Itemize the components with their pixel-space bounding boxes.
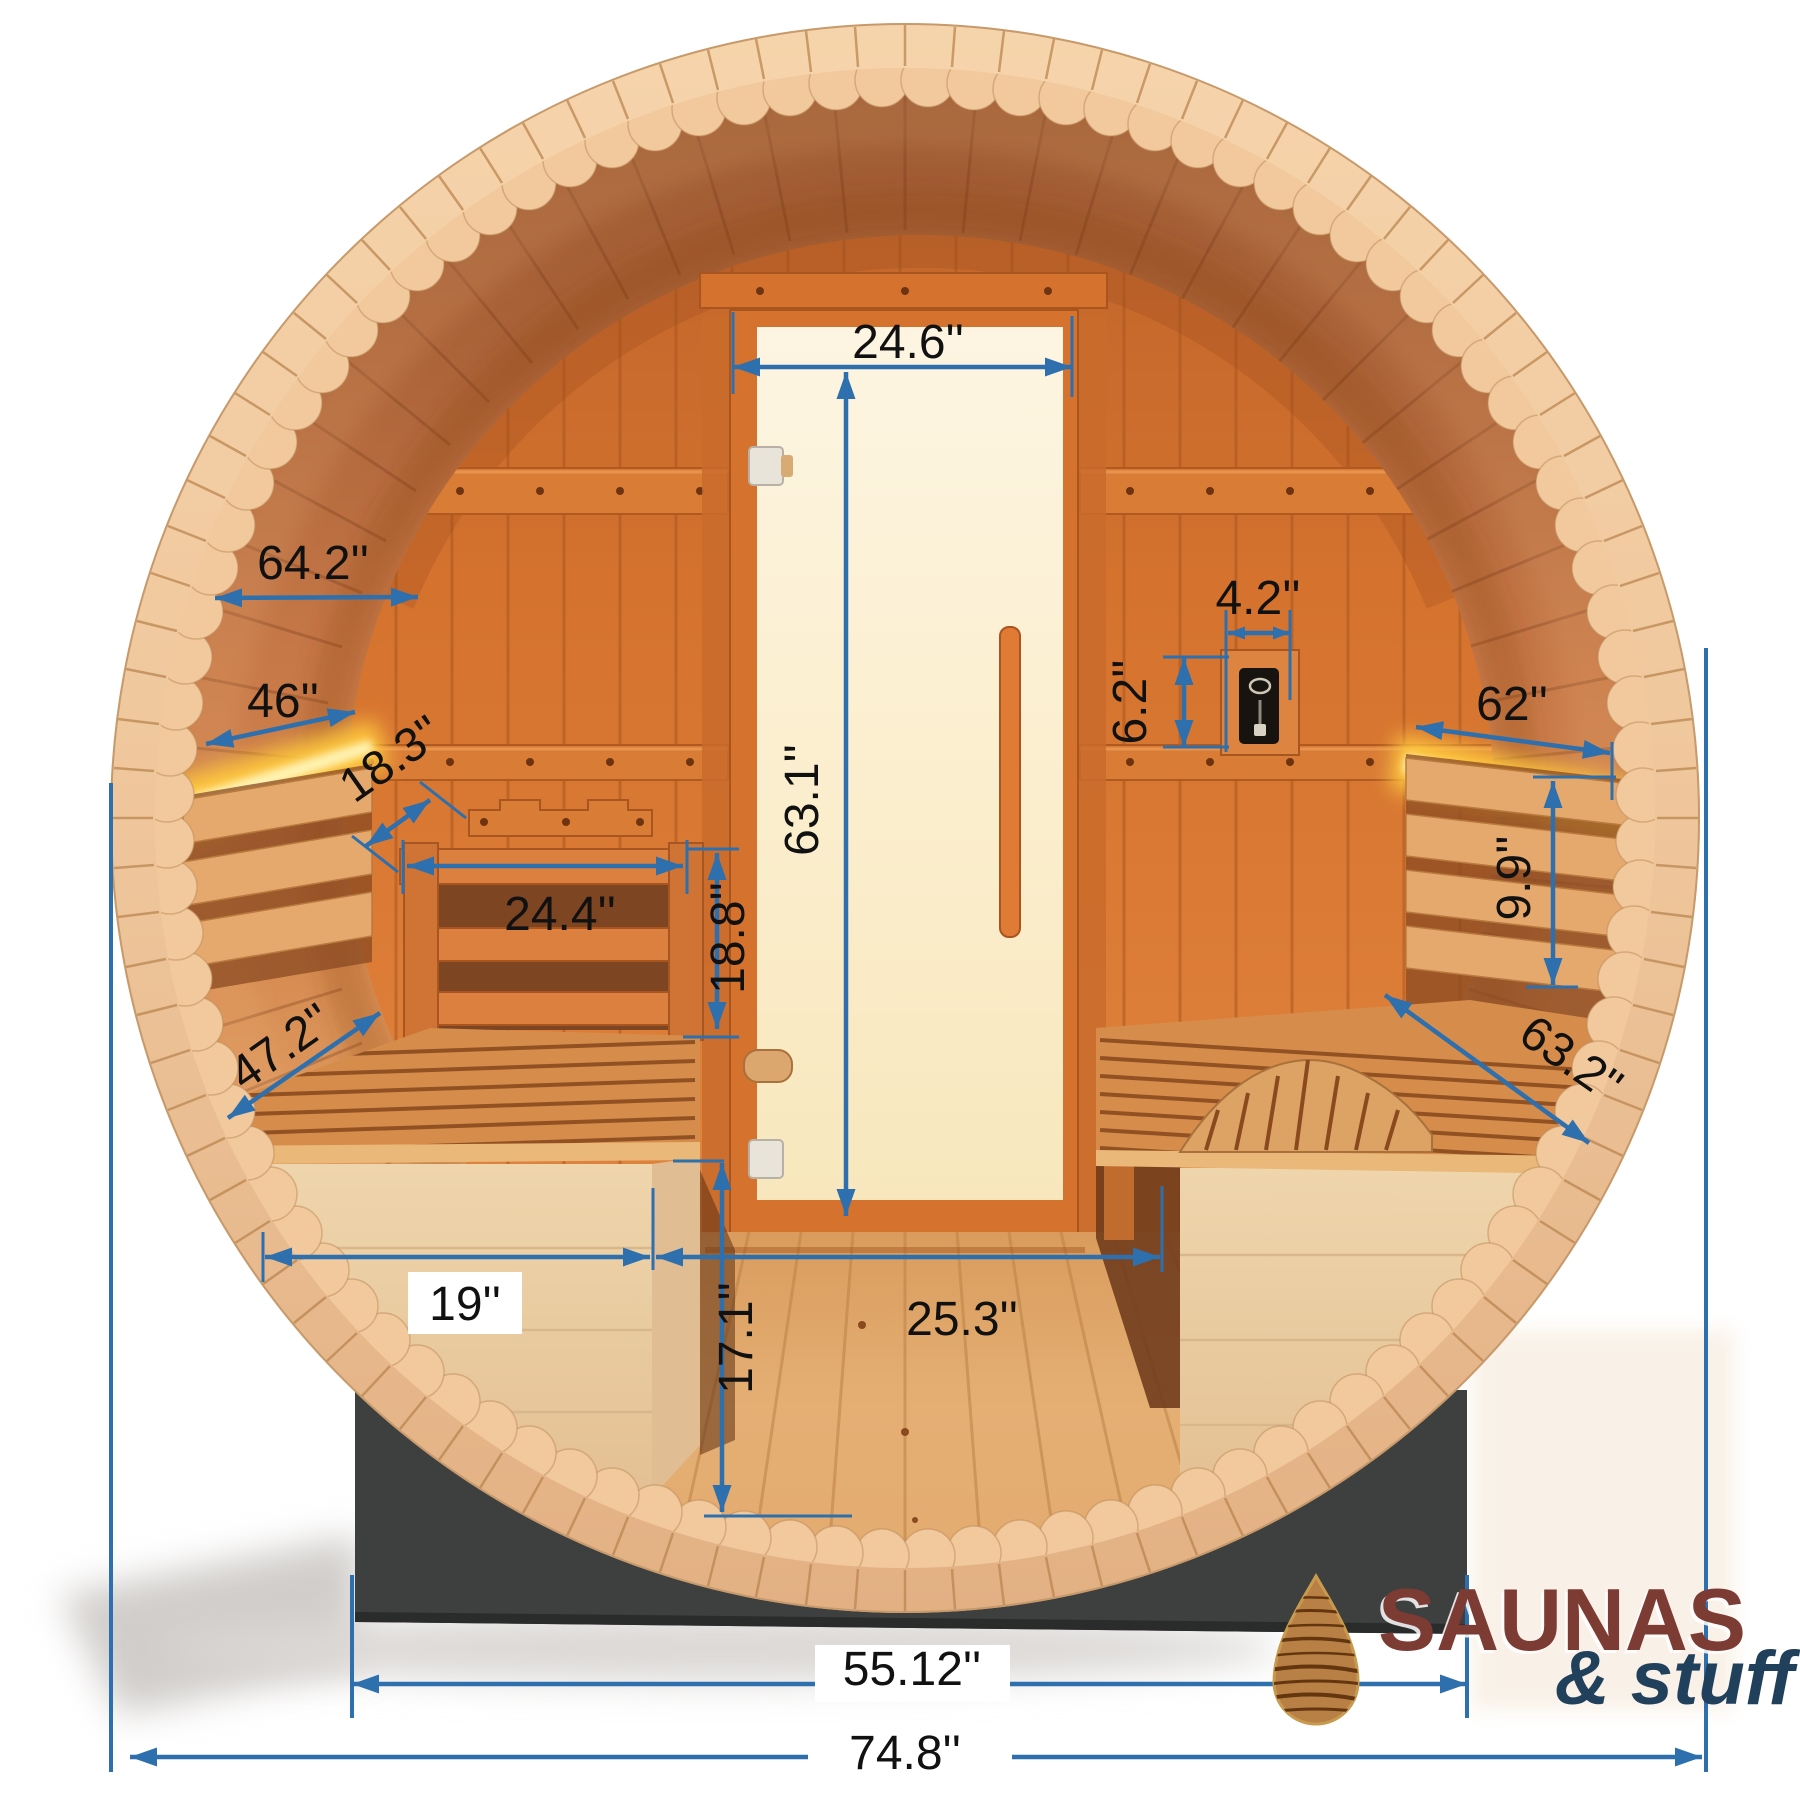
svg-text:4.2'': 4.2'' (1215, 572, 1300, 625)
svg-text:6.2'': 6.2'' (1104, 659, 1157, 744)
svg-text:25.3'': 25.3'' (906, 1293, 1018, 1346)
svg-text:63.1'': 63.1'' (776, 744, 829, 856)
svg-text:19'': 19'' (429, 1278, 501, 1331)
svg-text:17.1'': 17.1'' (710, 1282, 763, 1394)
svg-text:24.4'': 24.4'' (504, 888, 616, 941)
svg-text:64.2'': 64.2'' (257, 537, 369, 590)
svg-text:55.12'': 55.12'' (843, 1643, 981, 1696)
svg-text:62'': 62'' (1476, 678, 1548, 731)
svg-text:& stuff: & stuff (1555, 1636, 1800, 1721)
svg-text:24.6'': 24.6'' (852, 316, 964, 369)
svg-text:9.9'': 9.9'' (1488, 835, 1541, 920)
svg-text:46'': 46'' (247, 675, 319, 728)
svg-text:18.8'': 18.8'' (702, 882, 755, 994)
svg-text:74.8'': 74.8'' (849, 1727, 961, 1780)
